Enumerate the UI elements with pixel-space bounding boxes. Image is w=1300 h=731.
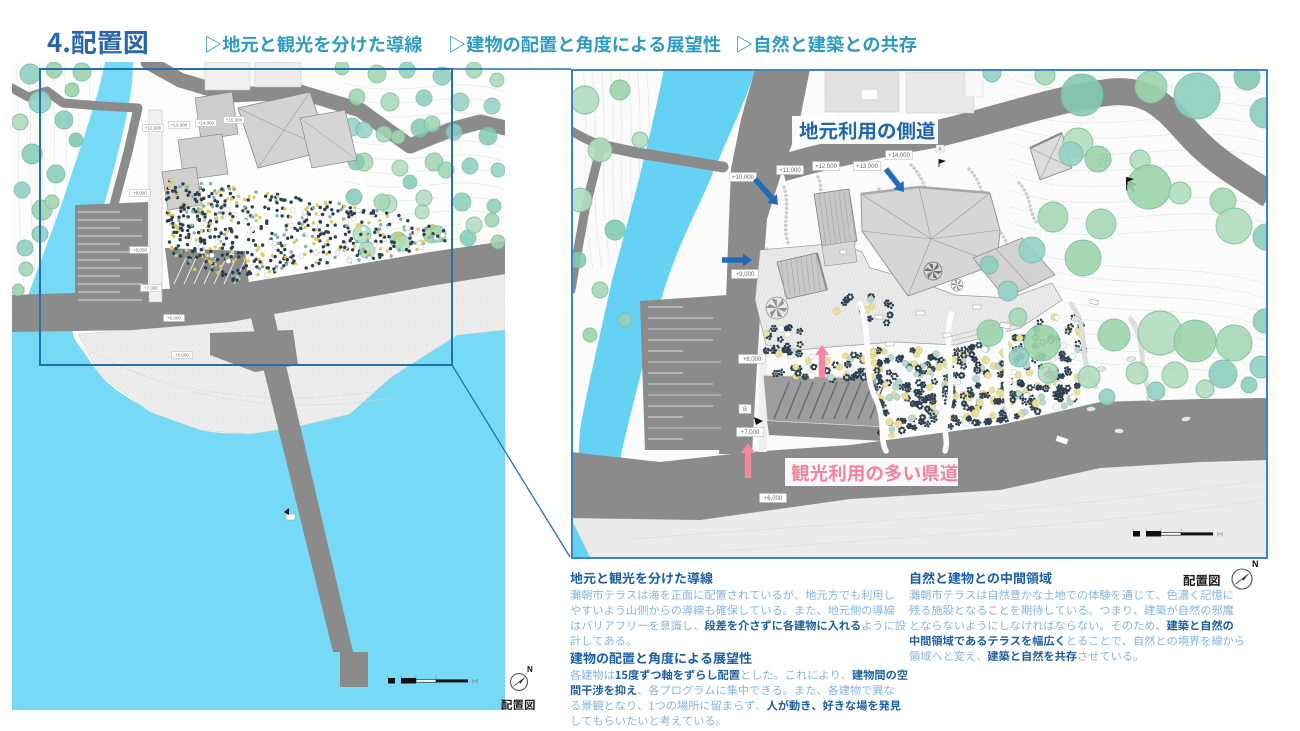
svg-text:N: N [527, 665, 533, 674]
svg-text:N: N [1252, 559, 1259, 569]
